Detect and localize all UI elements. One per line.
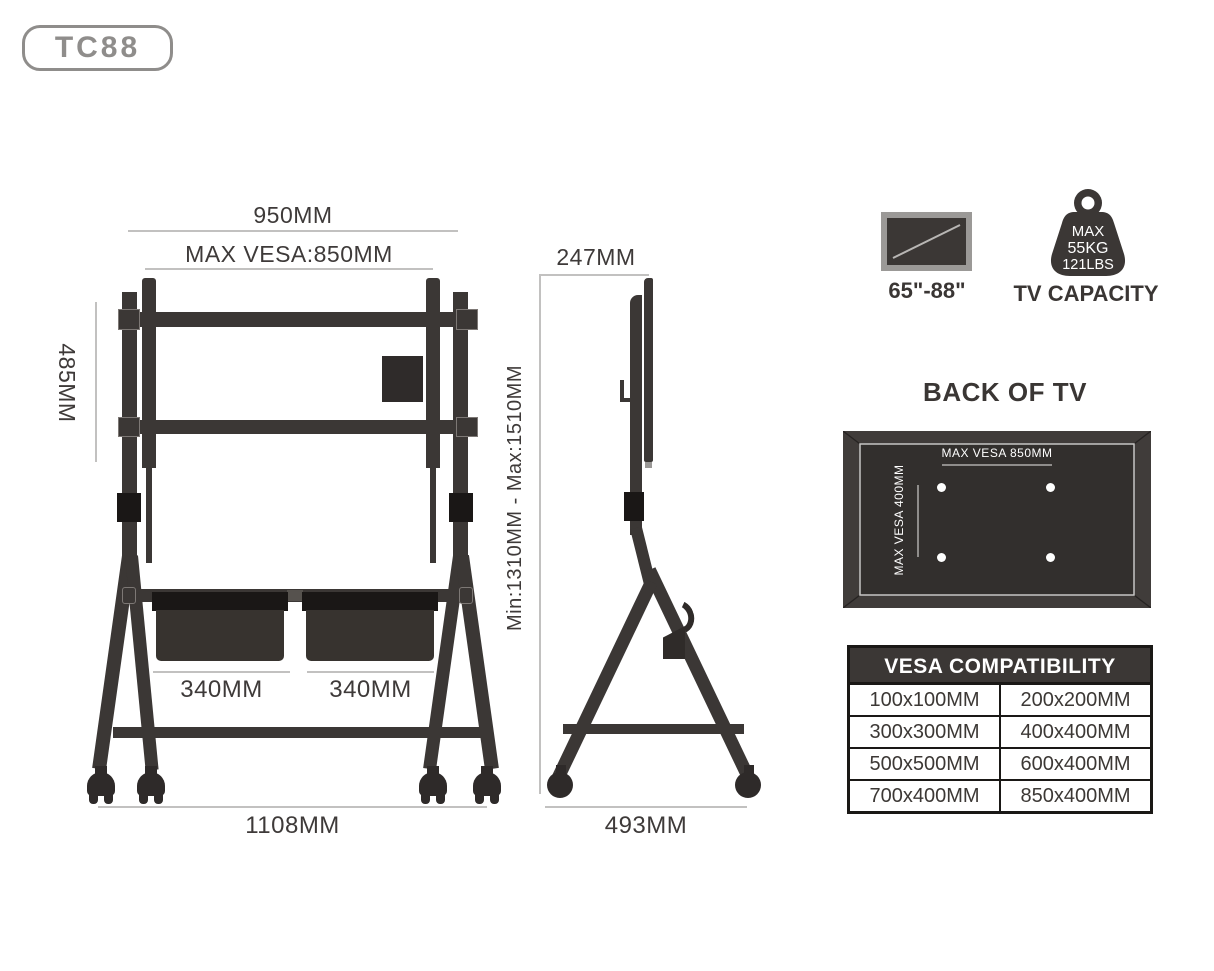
accessory-box [382, 356, 423, 402]
max-vesa-vertical-line [917, 485, 919, 557]
vesa-table-title: VESA COMPATIBILITY [847, 645, 1153, 682]
vesa-table-grid: 100x100MM 200x200MM 300x300MM 400x400MM … [847, 682, 1153, 814]
vesa-cell: 700x400MM [849, 780, 1001, 813]
storage-box-left-top [152, 592, 288, 611]
shelf-rail-connector [287, 590, 303, 601]
crossbar-joint-cap [118, 309, 140, 330]
tv-bracket-bar-right [426, 278, 440, 468]
tv-bracket-bar-left [142, 278, 156, 468]
crossbar-lower [128, 420, 468, 434]
tv-panel-side [644, 278, 653, 462]
vesa-cell: 300x300MM [849, 716, 1001, 748]
table-row: 300x300MM 400x400MM [849, 716, 1152, 748]
dim-total-width-label: 1108MM [98, 812, 487, 840]
caster-front-4 [473, 766, 501, 806]
vesa-cell: 850x400MM [1000, 780, 1152, 813]
dim-height-range-label: Min:1310MM - Max:1510MM [504, 348, 528, 648]
dim-box-left-line [153, 671, 290, 673]
caster-side-2 [735, 772, 761, 798]
dim-base-depth-label: 493MM [545, 812, 747, 840]
lower-brace-front [113, 727, 482, 738]
dim-depth-label: 247MM [541, 244, 651, 271]
max-vesa-horizontal-line [942, 464, 1052, 466]
dim-base-depth-line [545, 806, 747, 808]
vesa-cell: 600x400MM [1000, 748, 1152, 780]
vesa-cell: 400x400MM [1000, 716, 1152, 748]
shelf-rail-cap-right [459, 587, 473, 604]
vesa-cell: 200x200MM [1000, 684, 1152, 717]
dim-total-width-line [98, 806, 487, 808]
caster-front-1 [87, 766, 115, 806]
table-row: 700x400MM 850x400MM [849, 780, 1152, 813]
vesa-hole [937, 553, 946, 562]
tv-size-icon [881, 212, 972, 271]
caster-side-1 [547, 772, 573, 798]
crossbar-joint-cap [456, 309, 478, 330]
dim-box-left-label: 340MM [153, 676, 290, 704]
spec-sheet: TC88 950MM MAX VESA:850MM 485MM [0, 0, 1214, 971]
model-badge: TC88 [22, 25, 173, 71]
caster-front-3 [419, 766, 447, 806]
tv-size-label: 65"-88" [866, 278, 988, 304]
dim-top-width-label: 950MM [128, 202, 458, 229]
leg-side-rear [644, 567, 755, 780]
tv-bracket-rod-left [146, 468, 152, 563]
dim-bracket-height-line [95, 302, 97, 462]
hook-horizontal [620, 398, 633, 402]
shelf-rail-cap-left [122, 587, 136, 604]
caster-front-2 [137, 766, 165, 806]
storage-box-left [156, 610, 284, 661]
capacity-line1: MAX [1072, 223, 1105, 240]
max-vesa-horizontal-label: MAX VESA 850MM [922, 446, 1072, 460]
dim-depth-line [539, 274, 649, 276]
table-row: 100x100MM 200x200MM [849, 684, 1152, 717]
lower-brace-side [563, 724, 744, 734]
max-vesa-vertical-label: MAX VESA 400MM [892, 450, 916, 590]
lock-sleeve-side [624, 492, 644, 521]
capacity-line3: 121LBS [1062, 257, 1114, 273]
weight-icon: MAX 55KG 121LBS [1042, 186, 1134, 280]
vesa-hole [1046, 483, 1055, 492]
dim-box-right-line [307, 671, 434, 673]
crossbar-upper [128, 312, 468, 327]
back-of-tv-title: BACK OF TV [900, 377, 1110, 408]
lock-sleeve-right [449, 493, 473, 522]
dim-height-line [539, 274, 541, 794]
tv-diagonal-line [887, 218, 966, 265]
leg-side-front [552, 579, 658, 781]
storage-box-right-top [302, 592, 438, 611]
crossbar-joint-cap [456, 417, 478, 437]
vesa-cell: 500x500MM [849, 748, 1001, 780]
dim-top-width-line [128, 230, 458, 232]
dim-box-right-label: 340MM [307, 676, 434, 704]
dim-bracket-height-label: 485MM [56, 323, 80, 443]
capacity-line2: 55KG [1068, 240, 1109, 257]
tv-bracket-rod-right [430, 468, 436, 563]
lock-sleeve-left [117, 493, 141, 522]
storage-box-right [306, 610, 434, 661]
vesa-cell: 100x100MM [849, 684, 1001, 717]
dim-max-vesa-label: MAX VESA:850MM [145, 241, 433, 268]
dim-max-vesa-line [145, 268, 433, 270]
crossbar-joint-cap [118, 417, 140, 437]
table-row: 500x500MM 600x400MM [849, 748, 1152, 780]
vesa-hole [1046, 553, 1055, 562]
vesa-hole [937, 483, 946, 492]
tv-panel-bottom-cap [645, 462, 652, 468]
tv-capacity-label: TV CAPACITY [1006, 281, 1166, 307]
vesa-compatibility-table: VESA COMPATIBILITY 100x100MM 200x200MM 3… [847, 645, 1153, 814]
